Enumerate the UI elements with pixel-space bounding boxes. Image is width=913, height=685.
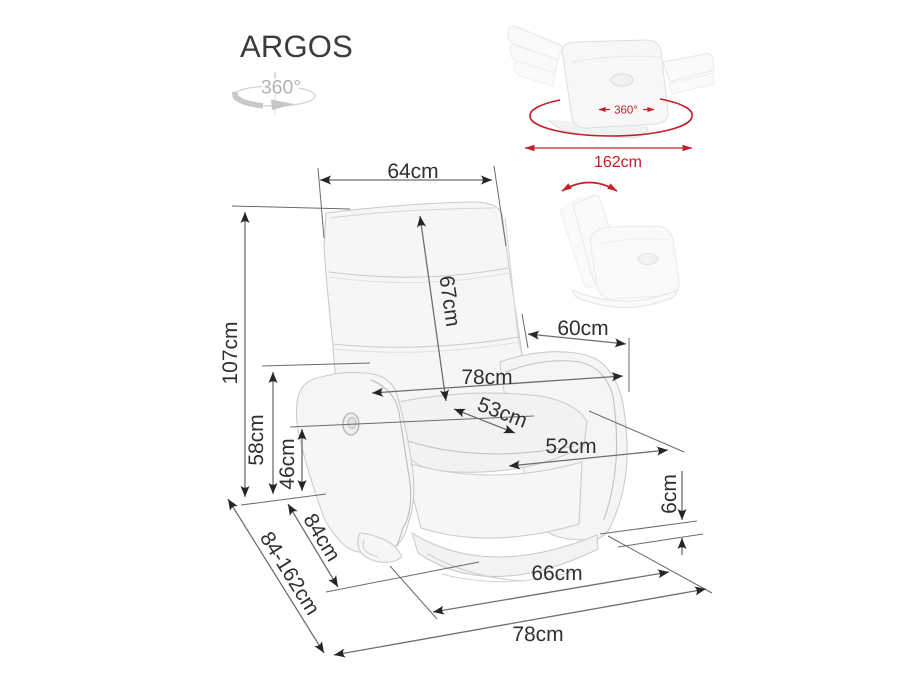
svg-text:360°: 360° [261, 77, 301, 99]
svg-text:60cm: 60cm [557, 317, 608, 340]
svg-text:360°: 360° [614, 105, 638, 117]
svg-text:162cm: 162cm [594, 154, 642, 171]
svg-text:78cm: 78cm [461, 366, 512, 389]
svg-text:78cm: 78cm [512, 623, 563, 646]
svg-text:46cm: 46cm [276, 438, 299, 489]
svg-text:66cm: 66cm [531, 562, 582, 585]
svg-text:58cm: 58cm [245, 414, 268, 465]
svg-text:ARGOS: ARGOS [240, 29, 353, 64]
svg-text:64cm: 64cm [387, 160, 438, 183]
svg-text:6cm: 6cm [658, 474, 681, 514]
svg-text:107cm: 107cm [219, 321, 242, 384]
svg-text:52cm: 52cm [545, 435, 596, 458]
